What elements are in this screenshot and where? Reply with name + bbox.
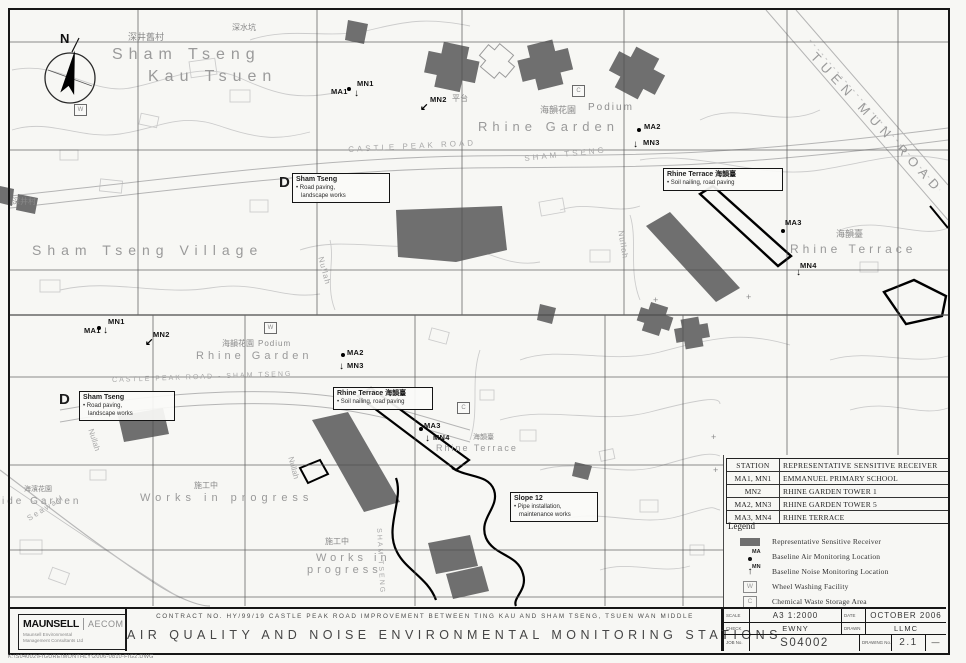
station-label-MN3: MN3 (347, 362, 364, 370)
legend-item-label: Representative Sensitive Receiver (772, 537, 881, 546)
station-noise-marker: ↓ (633, 140, 638, 150)
receiver-legend-icon (728, 535, 772, 549)
station-air-marker (341, 353, 345, 357)
map-label: Podium (258, 340, 291, 348)
callout-title: Slope 12 (514, 495, 594, 504)
map-label: Rhine Terrace (790, 243, 916, 255)
logo-subtitle-2: Management Consultants Ltd (23, 638, 125, 644)
callout-line: • Soil nailing, road paving (337, 399, 429, 407)
legend-item-label: Chemical Waste Storage Area (772, 597, 867, 606)
callout-box: Slope 12• Pipe installation, maintenance… (510, 492, 598, 522)
map-label: Kau Tsuen (148, 69, 277, 85)
legend-panel: STATIONREPRESENTATIVE SENSITIVE RECEIVER… (723, 455, 951, 607)
station-label-MN4: MN4 (800, 262, 817, 270)
map-label: D (59, 392, 70, 407)
check-label: CHECK (723, 623, 749, 634)
file-path: K:\S04002\FIGURE\MONTHLY\2006-0810-FIG2.… (8, 654, 154, 660)
map-label: Works in progress (140, 493, 313, 504)
facility-marker-C: C (457, 402, 470, 414)
station-air-marker (637, 128, 641, 132)
legend-item-label: Baseline Noise Monitoring Location (772, 567, 889, 576)
logo-maunsell: MAUNSELL (19, 618, 79, 630)
scale-value: A3 1:2000 (749, 609, 841, 622)
map-label: 深井村 (12, 198, 36, 206)
callout-box: Sham Tseng• Road paving, landscape works (79, 391, 175, 421)
table-cell: RHINE GARDEN TOWER 5 (779, 498, 948, 510)
station-air-marker (781, 229, 785, 233)
station-noise-marker: ↓ (339, 362, 344, 372)
north-arrow-icon (45, 38, 95, 103)
map-label: Rhine Garden (196, 351, 313, 362)
callout-line: maintenance works (514, 512, 594, 520)
job-value: S04002 (749, 635, 859, 651)
station-air-marker (419, 427, 423, 431)
legend-item: Representative Sensitive Receiver (728, 534, 948, 549)
company-logo: MAUNSELL AECOM Maunsell Environmental Ma… (18, 614, 126, 650)
station-noise-marker: ↓ (354, 89, 359, 99)
logo-separator (83, 618, 84, 630)
receiver-table: STATIONREPRESENTATIVE SENSITIVE RECEIVER… (726, 458, 949, 524)
map-label: 海韻花園 (222, 340, 254, 348)
callout-line: landscape works (83, 411, 171, 419)
callout-line: landscape works (296, 193, 386, 201)
map-label: 施工中 (194, 482, 218, 490)
station-label-MA2: MA2 (644, 123, 661, 131)
facility-marker-W: W (264, 322, 277, 334)
wheel-legend-icon: W (728, 580, 772, 594)
top-map-tower-outline (474, 39, 519, 84)
drawing-label: DRAWING No. (859, 635, 891, 651)
map-label: 深井舊村 (128, 33, 164, 42)
map-label: N (60, 32, 69, 45)
station-label-MA2: MA2 (347, 349, 364, 357)
station-label-MA3: MA3 (785, 219, 802, 227)
map-label: + (746, 293, 751, 302)
table-cell: MN2 (727, 485, 779, 497)
map-label: + (711, 433, 716, 442)
check-value: EWNY (749, 623, 841, 634)
map-label: 海韻臺 (473, 434, 494, 441)
table-cell: RHINE GARDEN TOWER 1 (779, 485, 948, 497)
table-header-cell: REPRESENTATIVE SENSITIVE RECEIVER (779, 459, 948, 471)
callout-box: Rhine Terrace 海韻臺• Soil nailing, road pa… (333, 387, 433, 410)
contract-line: CONTRACT NO. HY/99/19 CASTLE PEAK ROAD I… (127, 613, 723, 620)
drawn-label: DRAWN (841, 623, 865, 634)
map-label: 海濱花園 (24, 486, 52, 493)
map-label: + (713, 466, 718, 475)
callout-line: • Soil nailing, road paving (667, 180, 779, 188)
date-label: DATE (841, 609, 865, 622)
station-label-MN2: MN2 (430, 96, 447, 104)
callout-box: Sham Tseng• Road paving, landscape works (292, 173, 390, 203)
titleblock-middle: CONTRACT NO. HY/99/19 CASTLE PEAK ROAD I… (127, 609, 723, 651)
legend-list: Legend Representative Sensitive Receiver… (728, 521, 948, 609)
drawn-value: LLMC (865, 623, 946, 634)
station-label-MA1: MA1 (331, 88, 348, 96)
facility-marker-C: C (572, 85, 585, 97)
map-label: Sham Tseng Village (32, 243, 263, 257)
station-noise-marker: ↙ (420, 103, 428, 113)
map-label: progress (307, 565, 382, 576)
callout-title: Sham Tseng (83, 394, 171, 403)
station-label-MN3: MN3 (643, 139, 660, 147)
callout-title: Rhine Terrace 海韻臺 (667, 171, 779, 180)
drawing-value: 2.1 (891, 635, 925, 651)
map-label: Rhine Garden (478, 120, 619, 133)
callout-line: • Road paving, (83, 403, 171, 411)
titleblock-right: SCALE A3 1:2000 DATE OCTOBER 2006 CHECK … (723, 609, 946, 651)
station-label-MN1: MN1 (357, 80, 374, 88)
table-row: MN2RHINE GARDEN TOWER 1 (727, 485, 948, 498)
date-value: OCTOBER 2006 (865, 609, 946, 622)
rev-value: — (925, 635, 946, 651)
title-block: MAUNSELL AECOM Maunsell Environmental Ma… (8, 607, 946, 651)
drawing-title: AIR QUALITY AND NOISE ENVIRONMENTAL MONI… (127, 628, 723, 642)
callout-title: Rhine Terrace 海韻臺 (337, 390, 429, 399)
legend-item-label: Wheel Washing Facility (772, 582, 849, 591)
job-label: JOB No. (723, 635, 749, 651)
table-cell: MA2, MN3 (727, 498, 779, 510)
legend-item: MABaseline Air Monitoring Location (728, 549, 948, 564)
table-row: MA2, MN3RHINE GARDEN TOWER 5 (727, 498, 948, 511)
table-header-row: STATIONREPRESENTATIVE SENSITIVE RECEIVER (727, 459, 948, 472)
station-label-MN2: MN2 (153, 331, 170, 339)
station-air-marker (97, 326, 101, 330)
map-label: D (279, 175, 290, 190)
table-header-cell: STATION (727, 459, 779, 471)
callout-line: • Pipe installation, (514, 504, 594, 512)
table-cell: MA1, MN1 (727, 472, 779, 484)
map-label: 平台 (452, 95, 468, 103)
station-noise-marker: ↓ (425, 434, 430, 444)
legend-item-label: Baseline Air Monitoring Location (772, 552, 880, 561)
map-label: 海韻花園 (540, 106, 576, 115)
logo-aecom: AECOM (88, 619, 124, 629)
table-cell: EMMANUEL PRIMARY SCHOOL (779, 472, 948, 484)
station-label-MN4: MN4 (433, 434, 450, 442)
legend-title: Legend (728, 521, 948, 531)
station-noise-marker: ↓ (103, 326, 108, 336)
legend-item: ↑MNBaseline Noise Monitoring Location (728, 564, 948, 579)
facility-marker-W: W (74, 104, 87, 116)
map-label: 施工中 (325, 538, 349, 546)
map-label: 海韻臺 (836, 230, 863, 239)
callout-title: Sham Tseng (296, 176, 386, 185)
air-legend-icon: MA (728, 550, 772, 564)
callout-line: • Road paving, (296, 185, 386, 193)
map-label: 深水坑 (232, 24, 256, 32)
drawing-sheet: N深井舊村Sham TsengKau Tsuen深水坑平台海韻花園PodiumR… (0, 0, 966, 663)
noise-legend-icon: ↑MN (728, 565, 772, 579)
map-label: + (653, 296, 658, 305)
map-label: Podium (588, 103, 634, 113)
callout-box: Rhine Terrace 海韻臺• Soil nailing, road pa… (663, 168, 783, 191)
table-row: MA1, MN1EMMANUEL PRIMARY SCHOOL (727, 472, 948, 485)
station-label-MN1: MN1 (108, 318, 125, 326)
legend-item: WWheel Washing Facility (728, 579, 948, 594)
station-air-marker (347, 87, 351, 91)
scale-label: SCALE (723, 609, 749, 622)
station-label-MA3: MA3 (424, 422, 441, 430)
station-noise-marker: ↙ (145, 338, 153, 348)
map-label: Sham Tseng (112, 47, 261, 63)
station-noise-marker: ↓ (796, 268, 801, 278)
top-map-buildings (0, 20, 740, 302)
map-label: Rhine Terrace (436, 444, 518, 453)
